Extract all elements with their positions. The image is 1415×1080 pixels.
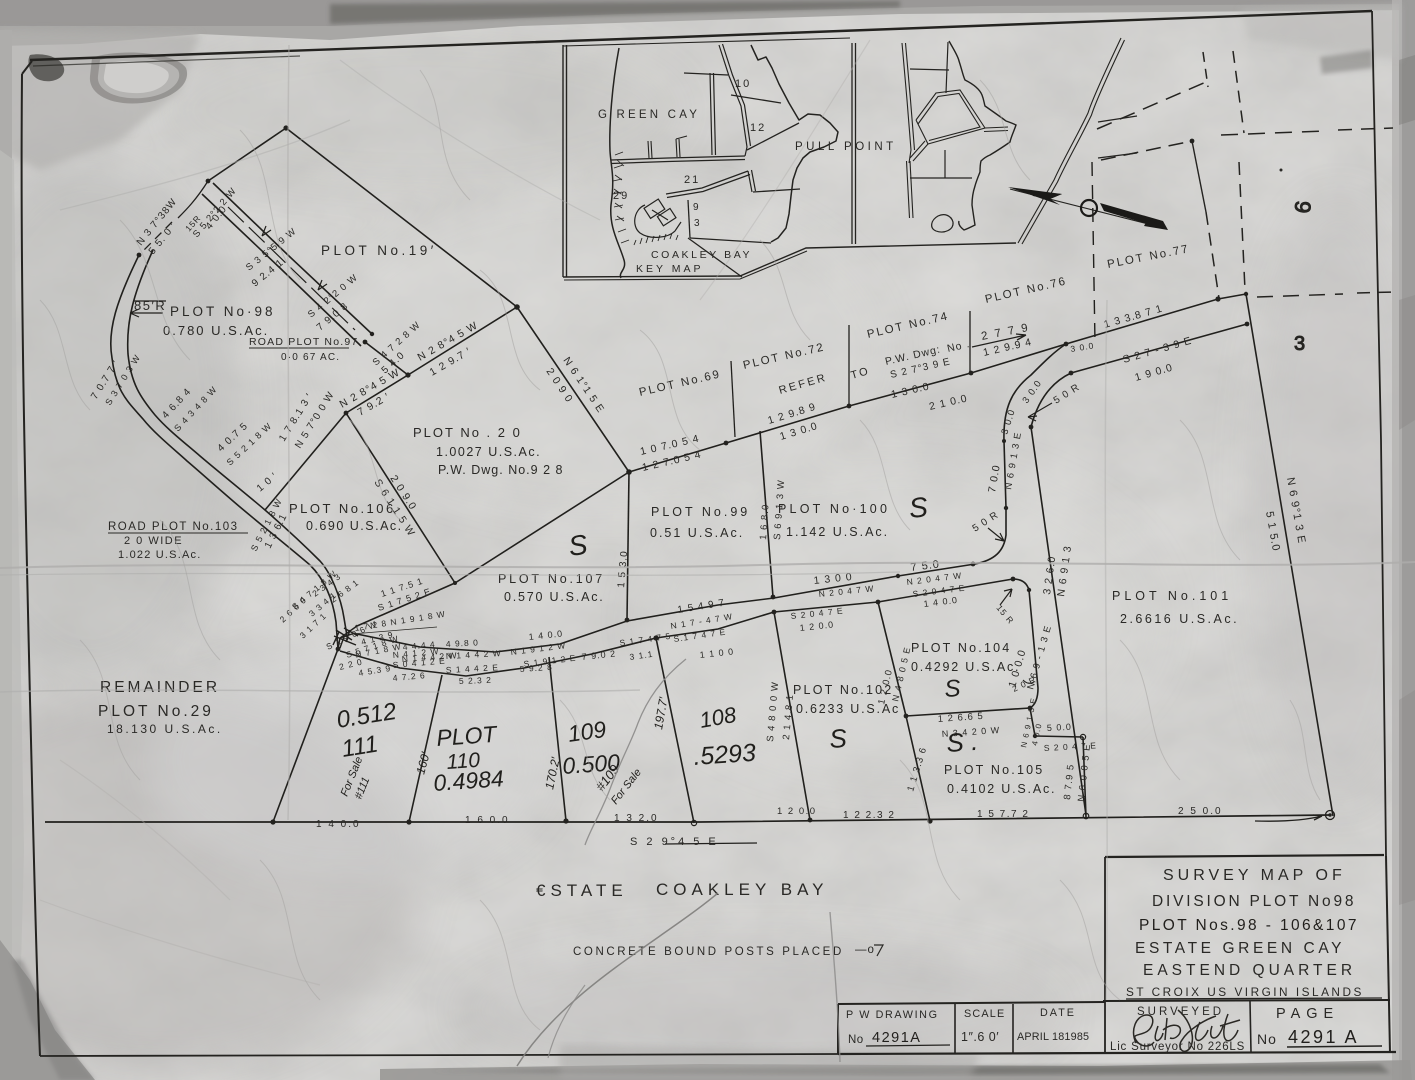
svg-text:P.W. Dwg. No.9 2 8: P.W. Dwg. No.9 2 8 (438, 463, 563, 477)
svg-text:SURVEY MAP OF: SURVEY MAP OF (1163, 867, 1346, 884)
svg-text:PLOT: PLOT (436, 721, 500, 751)
svg-text:€STATE: €STATE (536, 881, 628, 900)
svg-text:3: 3 (694, 218, 700, 229)
svg-text:9: 9 (693, 202, 699, 213)
svg-text:1 4 0.0: 1 4 0.0 (316, 819, 361, 830)
svg-text:4 9.8 0: 4 9.8 0 (446, 637, 479, 649)
svg-text:ROAD PLOT No.103: ROAD PLOT No.103 (108, 521, 239, 533)
svg-text:P W DRAWING: P W DRAWING (846, 1009, 939, 1021)
svg-text:2.6616 U.S.Ac.: 2.6616 U.S.Ac. (1120, 612, 1239, 626)
svg-text:PLOT No.107: PLOT No.107 (498, 572, 605, 586)
svg-text:1 5 7.7 2: 1 5 7.7 2 (977, 809, 1029, 820)
svg-text:1.142 U.S.Ac.: 1.142 U.S.Ac. (786, 525, 889, 539)
svg-text:21: 21 (684, 174, 700, 186)
svg-text:PLOT No.99: PLOT No.99 (651, 505, 750, 519)
svg-text:KEY MAP: KEY MAP (636, 263, 704, 275)
svg-text:0.4102 U.S.Ac.: 0.4102 U.S.Ac. (947, 782, 1056, 796)
svg-text:0·0 67 AC.: 0·0 67 AC. (281, 352, 340, 363)
svg-text:109: 109 (566, 716, 608, 747)
svg-text:1 3 2.0: 1 3 2.0 (614, 813, 659, 824)
svg-text:PLOT No.101: PLOT No.101 (1112, 589, 1232, 603)
svg-text:1 2 0.0: 1 2 0.0 (777, 806, 817, 817)
svg-text:G REEN CAY: G REEN CAY (598, 109, 700, 121)
svg-text:DATE: DATE (1040, 1007, 1076, 1019)
svg-text:1″.6 0′: 1″.6 0′ (961, 1030, 999, 1044)
svg-text:PLOT No.29: PLOT No.29 (98, 703, 214, 720)
svg-text:ROAD PLOT No.97: ROAD PLOT No.97 (249, 336, 358, 348)
svg-text:COAKLEY BAY: COAKLEY BAY (651, 249, 752, 261)
svg-text:PLOT No·100: PLOT No·100 (778, 502, 890, 516)
svg-text:COAKLEY BAY: COAKLEY BAY (656, 880, 828, 899)
svg-text:SCALE: SCALE (964, 1008, 1005, 1020)
svg-text:APRIL 181985: APRIL 181985 (1017, 1031, 1089, 1043)
svg-text:5 0.0: 5 0.0 (1047, 722, 1073, 733)
svg-text:PAGE: PAGE (1276, 1006, 1339, 1022)
svg-text:12: 12 (750, 122, 766, 134)
svg-text:ST CROIX US VIRGIN ISLANDS: ST CROIX US VIRGIN ISLANDS (1126, 985, 1364, 999)
svg-text:S 2 9°4 5 E: S 2 9°4 5 E (630, 836, 719, 848)
svg-text:PLOT No.19′: PLOT No.19′ (321, 243, 437, 258)
svg-text:Lic Surveyor No 226LS: Lic Surveyor No 226LS (1110, 1041, 1245, 1053)
svg-text:1 2 2.3 2: 1 2 2.3 2 (843, 810, 895, 821)
svg-text:S: S (907, 491, 929, 524)
svg-text:No: No (848, 1034, 864, 1046)
svg-text:EASTEND QUARTER: EASTEND QUARTER (1143, 962, 1356, 979)
svg-text:0.4984: 0.4984 (433, 765, 505, 796)
svg-text:PLOT No.106: PLOT No.106 (289, 501, 396, 516)
svg-text:CONCRETE BOUND POSTS PLACED: CONCRETE BOUND POSTS PLACED (573, 946, 844, 958)
svg-text:DIVISION PLOT No98: DIVISION PLOT No98 (1152, 893, 1356, 910)
svg-text:0.51 U.S.Ac.: 0.51 U.S.Ac. (650, 526, 744, 540)
svg-text:ESTATE GREEN CAY: ESTATE GREEN CAY (1135, 940, 1345, 957)
svg-text:29: 29 (613, 190, 629, 202)
svg-text:PLOT Nos.98 - 106&107: PLOT Nos.98 - 106&107 (1139, 917, 1359, 934)
svg-text:PLOT No.105: PLOT No.105 (944, 763, 1044, 777)
svg-text:—o: —o (855, 944, 875, 956)
svg-text:S .: S . (945, 726, 979, 758)
svg-text:1.0027 U.S.Ac.: 1.0027 U.S.Ac. (436, 445, 541, 459)
svg-text:PLOT No.104: PLOT No.104 (911, 641, 1011, 655)
svg-text:4291 A: 4291 A (1288, 1027, 1359, 1047)
svg-text:1.022 U.S.Ac.: 1.022 U.S.Ac. (118, 549, 201, 561)
svg-text:PLOT No·98: PLOT No·98 (170, 304, 276, 319)
svg-text:18.130 U.S.Ac.: 18.130 U.S.Ac. (107, 722, 223, 736)
svg-text:1 6 0.0: 1 6 0.0 (465, 815, 510, 826)
svg-text:No: No (1257, 1031, 1277, 1047)
svg-text:5 2.3 2: 5 2.3 2 (459, 675, 492, 686)
svg-text:10: 10 (735, 78, 751, 90)
svg-text:0.4292 U.S.Ac.: 0.4292 U.S.Ac. (911, 660, 1020, 674)
svg-text:REMAINDER: REMAINDER (100, 679, 220, 696)
svg-text:2 5 0.0: 2 5 0.0 (1178, 806, 1223, 817)
svg-text:PLOT No . 2 0: PLOT No . 2 0 (413, 425, 522, 440)
svg-text:S: S (944, 675, 962, 703)
svg-text:0.570 U.S.Ac.: 0.570 U.S.Ac. (504, 590, 605, 604)
svg-text:4291A: 4291A (872, 1030, 921, 1046)
svg-text:2 0 WIDE: 2 0 WIDE (124, 535, 183, 547)
svg-text:.5293: .5293 (692, 739, 756, 771)
svg-text:3: 3 (1294, 333, 1305, 355)
svg-text:S: S (828, 723, 848, 754)
svg-text:0.6233 U.S.Ac: 0.6233 U.S.Ac (796, 702, 900, 716)
svg-text:0.690 U.S.Ac.: 0.690 U.S.Ac. (306, 519, 403, 533)
svg-text:PLOT No.102: PLOT No.102 (793, 683, 893, 697)
svg-text:PULL POINT: PULL POINT (795, 141, 897, 153)
